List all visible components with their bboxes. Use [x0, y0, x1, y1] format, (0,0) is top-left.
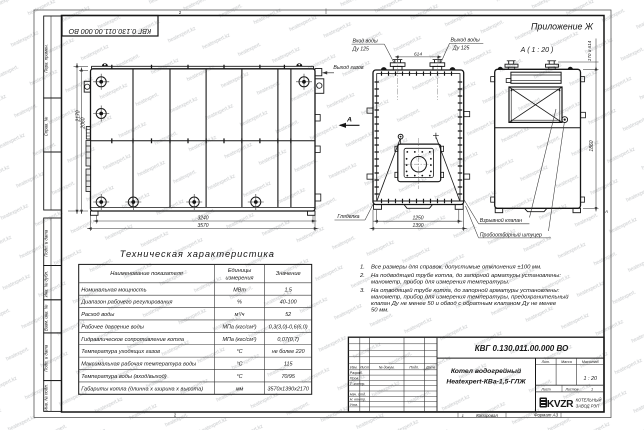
- svg-text:Пробоотборный штуцер: Пробоотборный штуцер: [480, 231, 542, 238]
- svg-text:Диапазон рабочего регулировани: Диапазон рабочего регулирования: [80, 300, 172, 306]
- svg-text:3.: 3.: [360, 288, 365, 294]
- svg-text:Масштаб: Масштаб: [582, 360, 600, 364]
- svg-text:Heatexpert-КВа-1,5-ГЛЖ: Heatexpert-КВа-1,5-ГЛЖ: [446, 378, 526, 385]
- svg-text:3570х1390х2170: 3570х1390х2170: [268, 386, 309, 392]
- svg-text:Масса: Масса: [561, 360, 572, 364]
- svg-text:Лист: Лист: [359, 365, 369, 369]
- svg-text:Температура уходящих газов: Температура уходящих газов: [81, 349, 160, 355]
- svg-text:170 и 614: 170 и 614: [587, 40, 592, 61]
- svg-text:А: А: [346, 117, 352, 124]
- svg-text:0,3(3,0)-0,6(6,0): 0,3(3,0)-0,6(6,0): [269, 324, 308, 330]
- svg-text:40-100: 40-100: [280, 300, 297, 306]
- svg-text:Изм.: Изм.: [350, 365, 358, 369]
- svg-text:1: 1: [591, 388, 593, 392]
- svg-text:Котел водогрейный: Котел водогрейный: [451, 367, 522, 375]
- svg-text:1: 1: [462, 413, 464, 418]
- svg-text:МВт: МВт: [233, 287, 246, 293]
- svg-text:°С: °С: [237, 362, 243, 368]
- svg-text:1,5: 1,5: [284, 287, 292, 293]
- svg-text:Выход газов: Выход газов: [333, 65, 364, 71]
- svg-text:Выход воды: Выход воды: [451, 38, 480, 44]
- svg-text:3240: 3240: [197, 215, 208, 221]
- svg-text:манометр, прибор для измерения: манометр, прибор для измерения температу…: [371, 279, 509, 285]
- svg-text:ЗАВОД РЭП: ЗАВОД РЭП: [576, 404, 600, 409]
- svg-text:1250: 1250: [412, 216, 423, 222]
- svg-text:Лист: Лист: [540, 388, 550, 392]
- svg-text:3570: 3570: [197, 223, 208, 229]
- svg-text:Т. контр.: Т. контр.: [350, 382, 366, 386]
- svg-text:Гидравлическое сопротивление к: Гидравлическое сопротивление котла: [81, 337, 184, 343]
- svg-text:1390: 1390: [412, 223, 423, 229]
- svg-text:клапан Ду не менее 50 и обвод: клапан Ду не менее 50 и обвод с обратным…: [371, 301, 557, 307]
- svg-text:Инв. № подл.: Инв. № подл.: [44, 384, 49, 411]
- svg-text:Лит.: Лит.: [541, 360, 550, 364]
- svg-text:°С: °С: [237, 374, 243, 380]
- svg-text:1 : 20: 1 : 20: [584, 376, 598, 382]
- svg-text:А ( 1 : 20 ): А ( 1 : 20 ): [520, 47, 554, 54]
- svg-text:2.: 2.: [359, 273, 365, 279]
- svg-text:Температура воды (вход/выход): Температура воды (вход/выход): [81, 374, 167, 380]
- svg-text:Вход воды: Вход воды: [353, 38, 378, 44]
- svg-text:Ду 125: Ду 125: [352, 46, 370, 52]
- svg-text:°С: °С: [237, 349, 243, 355]
- svg-text:Приложение Ж: Приложение Ж: [531, 22, 594, 32]
- svg-text:не более 220: не более 220: [272, 349, 305, 355]
- svg-text:Справ. №: Справ. №: [44, 116, 49, 136]
- svg-text:Разраб.: Разраб.: [350, 371, 363, 375]
- svg-text:м³/ч: м³/ч: [235, 312, 245, 318]
- svg-text:Максимальная рабочая температу: Максимальная рабочая температура воды: [81, 362, 196, 368]
- svg-text:Рабочее давление воды: Рабочее давление воды: [81, 324, 144, 330]
- svg-text:2060: 2060: [81, 117, 87, 129]
- svg-text:Подп. и дата: Подп. и дата: [44, 229, 49, 257]
- svg-text:1.: 1.: [360, 264, 365, 270]
- svg-text:1860: 1860: [589, 140, 595, 151]
- svg-text:0,07(0,7): 0,07(0,7): [277, 337, 299, 343]
- svg-text:№ докум.: № докум.: [379, 365, 395, 369]
- svg-text:52: 52: [285, 312, 291, 318]
- svg-text:Листов: Листов: [564, 388, 578, 392]
- svg-text:Расход воды: Расход воды: [81, 312, 114, 318]
- svg-text:KVZR: KVZR: [547, 399, 574, 410]
- svg-text:На отводящей трубе котла, до з: На отводящей трубе котла, до запорной ар…: [371, 287, 560, 294]
- svg-text:50 мм.: 50 мм.: [371, 307, 389, 313]
- svg-text:Инв. № дубл.: Инв. № дубл.: [44, 271, 49, 297]
- svg-text:Значение: Значение: [276, 271, 301, 277]
- svg-text:Все размеры для справок, допус: Все размеры для справок, допустимые откл…: [371, 264, 542, 270]
- svg-text:%: %: [237, 300, 242, 306]
- svg-text:70/95: 70/95: [281, 374, 295, 380]
- svg-text:Техническая характеристика: Техническая характеристика: [120, 249, 275, 259]
- svg-text:Нач. отд.: Нач. отд.: [350, 392, 366, 396]
- svg-text:манометр, прибор для измерения: манометр, прибор для измерения температу…: [371, 293, 569, 300]
- svg-text:Пров.: Пров.: [350, 377, 359, 381]
- svg-text:Единицы: Единицы: [228, 268, 251, 274]
- svg-text:КВГ 0.130.011.00.000 ВО: КВГ 0.130.011.00.000 ВО: [475, 344, 569, 353]
- svg-text:614: 614: [414, 51, 422, 57]
- svg-text:Номинальная мощность: Номинальная мощность: [81, 287, 146, 293]
- svg-text:Дата: Дата: [425, 365, 435, 369]
- svg-text:КВГ 0.130.011.00.000 ВО: КВГ 0.130.011.00.000 ВО: [68, 27, 151, 36]
- svg-text:Ду 125: Ду 125: [452, 46, 470, 52]
- svg-text:МПа (кгс/см²): МПа (кгс/см²): [223, 324, 257, 330]
- svg-text:Подп.: Подп.: [409, 365, 419, 369]
- svg-text:МПа (кгс/см²): МПа (кгс/см²): [223, 337, 257, 343]
- svg-text:Утв.: Утв.: [350, 403, 358, 407]
- svg-text:Копировал: Копировал: [476, 413, 498, 418]
- svg-text:Перв. примен.: Перв. примен.: [44, 44, 49, 73]
- svg-text:КОТЕЛЬНЫЙ: КОТЕЛЬНЫЙ: [576, 398, 602, 403]
- svg-text:Н. контр.: Н. контр.: [350, 398, 366, 402]
- svg-text:Наименование показателя: Наименование показателя: [110, 271, 183, 277]
- svg-text:115: 115: [284, 362, 294, 368]
- svg-text:измерения: измерения: [226, 276, 254, 282]
- svg-text:На подводящей трубе котла, до: На подводящей трубе котла, до запорной а…: [371, 272, 561, 279]
- svg-text:Взам. инв. №: Взам. инв. №: [44, 304, 49, 331]
- svg-text:мм: мм: [236, 386, 244, 392]
- svg-text:Габариты котла (длинна х ширин: Габариты котла (длинна х ширина х высота…: [81, 386, 203, 392]
- svg-text:Подп. и дата: Подп. и дата: [44, 344, 49, 372]
- svg-text:Гляделка: Гляделка: [337, 214, 359, 220]
- svg-text:Взрывной клапан: Взрывной клапан: [480, 217, 522, 224]
- svg-text:Формат А3: Формат А3: [534, 413, 559, 418]
